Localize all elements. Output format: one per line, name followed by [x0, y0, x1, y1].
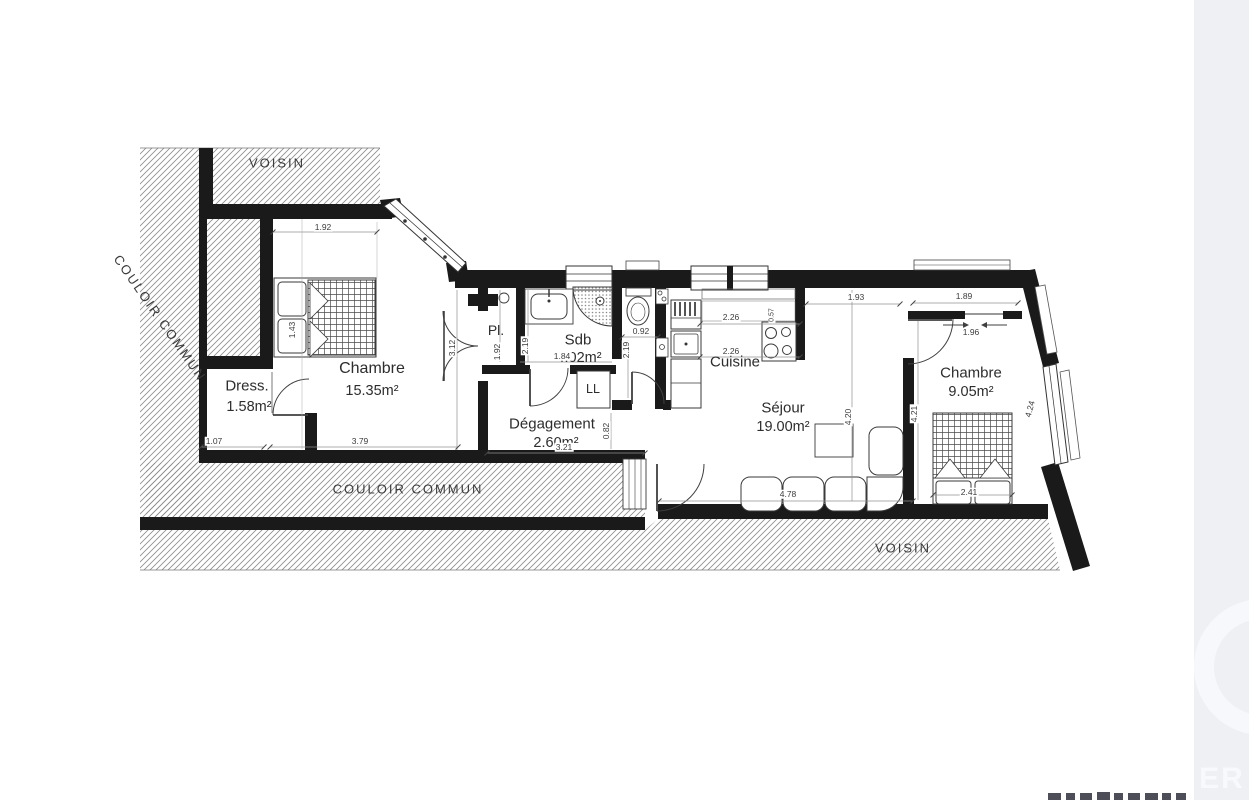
- room-chambre1-name: Chambre: [339, 361, 405, 377]
- room-cuisine-name: Cuisine: [710, 355, 760, 370]
- dim-label: 2.26: [722, 347, 741, 356]
- dim-label: 1.92: [314, 223, 333, 232]
- dim-label: 0.82: [602, 422, 611, 441]
- dim-label: 3.21: [555, 443, 574, 452]
- washing-machine-label: LL: [586, 383, 600, 396]
- dim-label: 1.89: [955, 292, 974, 301]
- dim-label: 1.43: [288, 321, 297, 340]
- dim-label: 4.21: [910, 405, 919, 424]
- room-dress-area: 1.58m²: [226, 400, 271, 415]
- room-chambre2-area: 9.05m²: [948, 385, 993, 400]
- voisin-top-label: VOISIN: [249, 157, 305, 170]
- room-sejour-name: Séjour: [761, 401, 804, 416]
- dim-label: 4.78: [779, 490, 798, 499]
- dim-label: 3.79: [351, 437, 370, 446]
- dim-label: 0.92: [632, 327, 651, 336]
- dim-label: 1.93: [847, 293, 866, 302]
- voisin-bottom-label: VOISIN: [875, 542, 931, 555]
- dim-label: 4.20: [844, 408, 853, 427]
- dim-label: 0.57: [769, 307, 776, 323]
- room-chambre1-area: 15.35m²: [345, 384, 398, 399]
- floor-plan-page: VOISIN COULOIR COMMUN COULOIR COMMUN VOI…: [0, 0, 1249, 800]
- cropped-watermark-marks: [1048, 792, 1186, 800]
- watermark-ring: [1204, 609, 1249, 725]
- room-dress-name: Dress.: [225, 379, 268, 394]
- room-sejour-area: 19.00m²: [756, 420, 809, 435]
- dim-label: 2.26: [722, 313, 741, 322]
- dim-label: 1.92: [493, 343, 502, 362]
- dim-label: 3.12: [448, 339, 457, 358]
- watermark-letters: ER: [1199, 762, 1245, 796]
- room-degagement-name: Dégagement: [509, 417, 595, 432]
- floor-plan-drawing: [0, 0, 1249, 800]
- dim-label: 2.19: [622, 341, 631, 360]
- room-sdb-name: Sdb: [565, 333, 592, 348]
- room-chambre2-name: Chambre: [940, 366, 1002, 381]
- room-placard-name: Pl.: [488, 323, 504, 337]
- dim-label: 1.96: [962, 328, 981, 337]
- dim-label: 2.19: [521, 337, 530, 356]
- dim-label: 1.84: [553, 352, 572, 361]
- dim-label: 1.07: [205, 437, 224, 446]
- couloir-commun-bottom-label: COULOIR COMMUN: [333, 483, 484, 496]
- dim-label: 2.41: [960, 488, 979, 497]
